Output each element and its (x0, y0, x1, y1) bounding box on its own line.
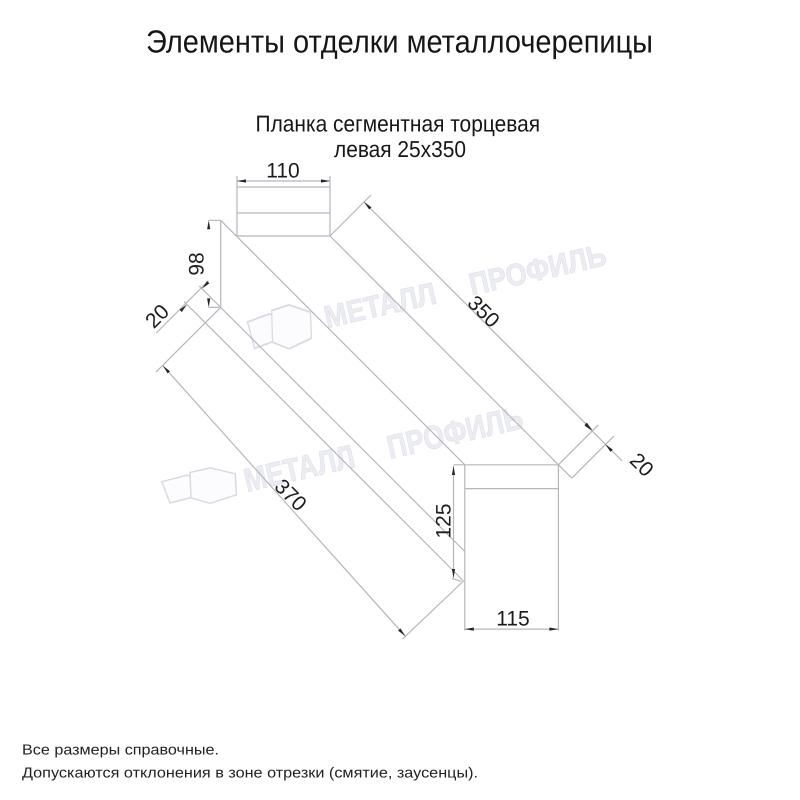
svg-text:Элементы отделки металлочерепи: Элементы отделки металлочерепицы (146, 23, 653, 59)
svg-text:Допускаются отклонения в зоне: Допускаются отклонения в зоне отрезки (с… (22, 766, 478, 782)
svg-text:20: 20 (625, 449, 658, 482)
svg-text:20: 20 (141, 300, 174, 333)
svg-text:МЕТАЛЛ ПРОФИЛЬ: МЕТАЛЛ ПРОФИЛЬ (321, 237, 610, 334)
svg-text:115: 115 (496, 608, 529, 631)
svg-text:Планка сегментная торцевая: Планка сегментная торцевая (256, 111, 541, 137)
svg-text:Все размеры справочные.: Все размеры справочные. (22, 743, 219, 759)
svg-text:110: 110 (266, 160, 299, 183)
svg-text:левая 25х350: левая 25х350 (334, 136, 466, 162)
svg-text:98: 98 (186, 252, 209, 275)
svg-text:125: 125 (433, 503, 456, 538)
